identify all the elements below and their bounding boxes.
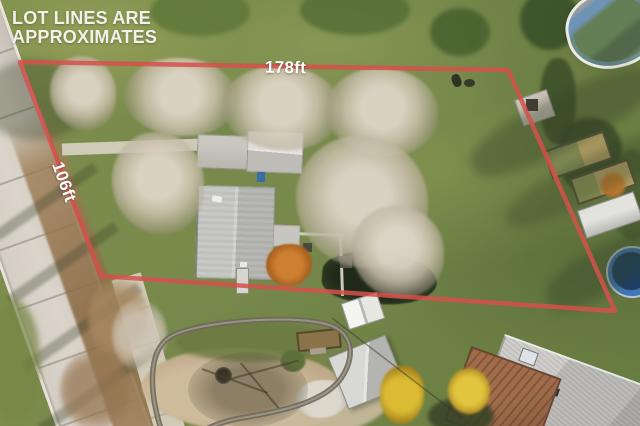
fence-line (332, 318, 465, 420)
lot-boundary-line (20, 62, 615, 311)
aerial-lot-photo: 178ft 106ft LOT LINES ARE APPROXIMATES (0, 0, 640, 426)
garden-loop-path-highlight (152, 320, 350, 426)
garden-loop-path (152, 320, 350, 426)
disclaimer-line-2: APPROXIMATES (12, 28, 157, 47)
disclaimer-text: LOT LINES ARE APPROXIMATES (12, 9, 157, 46)
lot-outline-overlay (0, 0, 640, 426)
disclaimer-line-1: LOT LINES ARE (12, 9, 157, 28)
lot-width-label: 178ft (265, 58, 307, 79)
